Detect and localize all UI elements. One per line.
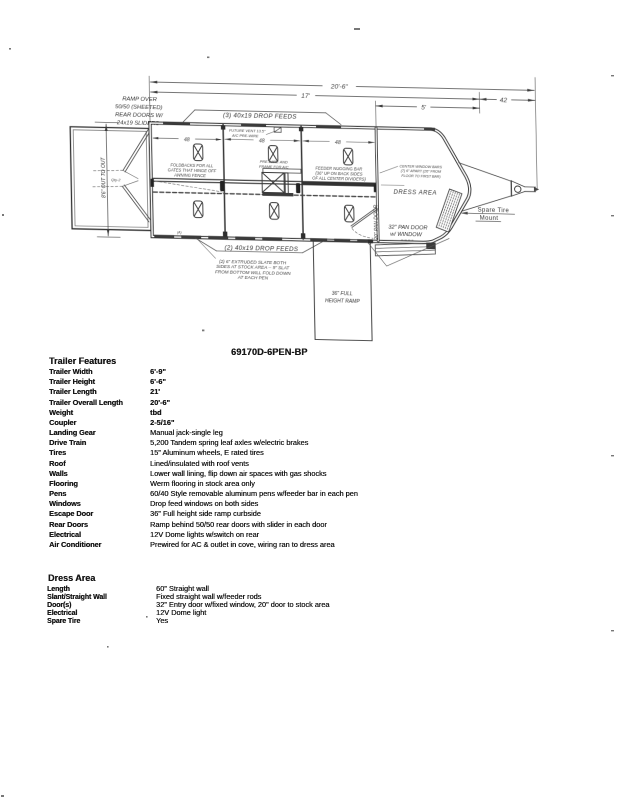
svg-text:FLOOR TO FIRST BAR): FLOOR TO FIRST BAR) — [401, 174, 440, 179]
svg-text:FUTURE VENT 13.5": FUTURE VENT 13.5" — [229, 129, 266, 134]
svg-text:36" FULL: 36" FULL — [332, 291, 353, 297]
svg-text:17': 17' — [301, 93, 310, 100]
svg-text:32" PAN DOOR: 32" PAN DOOR — [388, 225, 427, 232]
svg-text:48: 48 — [259, 138, 265, 144]
svg-text:RAMP OVER: RAMP OVER — [122, 96, 157, 103]
svg-text:DRESS AREA: DRESS AREA — [393, 190, 437, 197]
svg-text:5': 5' — [421, 104, 427, 111]
svg-text:20'-6": 20'-6" — [330, 83, 349, 90]
svg-text:42: 42 — [500, 97, 508, 104]
svg-text:(3) 40x19 DROP FEEDS: (3) 40x19 DROP FEEDS — [223, 112, 298, 121]
svg-text:(2) 40x19 DROP FEEDS: (2) 40x19 DROP FEEDS — [224, 245, 299, 254]
svg-text:48: 48 — [184, 137, 190, 143]
svg-text:(A): (A) — [177, 231, 182, 235]
svg-text:REAR DOORS W/: REAR DOORS W/ — [115, 112, 164, 119]
svg-text:PRE-WIRE AND: PRE-WIRE AND — [260, 160, 288, 165]
svg-text:20" PAN DOOR: 20" PAN DOOR — [374, 204, 381, 241]
svg-text:HEIGHT RAMP: HEIGHT RAMP — [325, 298, 360, 305]
svg-text:AT EACH PEN: AT EACH PEN — [237, 275, 269, 281]
svg-text:A/C PRE-WIRE: A/C PRE-WIRE — [231, 134, 259, 139]
svg-text:Qty-2: Qty-2 — [111, 178, 121, 182]
svg-text:AWNING FENCE: AWNING FENCE — [173, 172, 206, 178]
svg-text:8'6" OUT TO OUT: 8'6" OUT TO OUT — [101, 157, 108, 198]
svg-text:50/50 (SHEETED): 50/50 (SHEETED) — [115, 104, 163, 111]
svg-text:48: 48 — [335, 140, 341, 146]
svg-text:OF ALL CENTER DIVIDERS): OF ALL CENTER DIVIDERS) — [312, 176, 366, 182]
svg-text:w/ WINDOW: w/ WINDOW — [390, 232, 423, 239]
